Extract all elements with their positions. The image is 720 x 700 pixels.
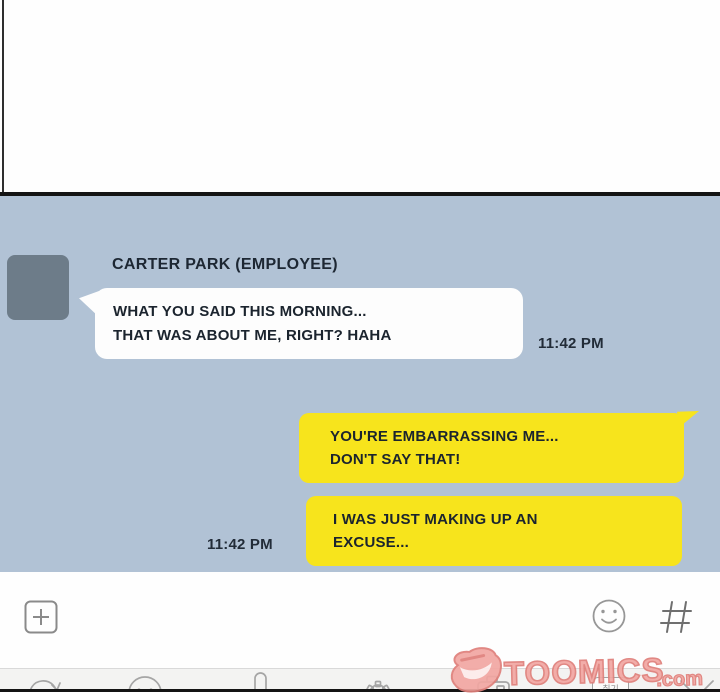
camera-button[interactable] xyxy=(476,675,512,689)
panel-bottom-border xyxy=(0,689,720,692)
keyboard-toolbar: 취기 xyxy=(0,668,720,689)
chat-panel: CARTER PARK (EMPLOYEE) WHAT YOU SAID THI… xyxy=(0,196,720,572)
smiley-icon xyxy=(591,622,627,637)
panel-left-border xyxy=(2,0,4,192)
sender-name: CARTER PARK (EMPLOYEE) xyxy=(112,256,338,274)
outgoing-message-bubble: YOU'RE EMBARRASSING ME... DON'T SAY THAT… xyxy=(299,413,684,483)
hashtag-icon xyxy=(658,624,696,639)
emoticon-button[interactable] xyxy=(127,675,163,689)
message-line: DON'T SAY THAT! xyxy=(330,448,684,471)
settings-button[interactable] xyxy=(360,673,396,689)
message-line: EXCUSE... xyxy=(333,531,682,554)
bubble-tail-left xyxy=(79,291,99,317)
timestamp: 11:42 PM xyxy=(207,536,273,553)
plus-icon xyxy=(24,622,58,637)
korean-label-button[interactable]: 취기 xyxy=(592,677,629,689)
close-button[interactable] xyxy=(679,679,715,689)
webtoon-chat-screenshot: CARTER PARK (EMPLOYEE) WHAT YOU SAID THI… xyxy=(0,0,720,700)
top-blank-panel xyxy=(0,0,720,192)
microphone-button[interactable] xyxy=(254,672,268,689)
message-composer xyxy=(0,572,720,668)
emoji-button[interactable] xyxy=(591,598,627,634)
incoming-message-bubble: WHAT YOU SAID THIS MORNING... THAT WAS A… xyxy=(95,288,523,359)
timestamp: 11:42 PM xyxy=(538,335,604,352)
message-line: THAT WAS ABOUT ME, RIGHT? HAHA xyxy=(113,324,523,348)
add-attachment-button[interactable] xyxy=(24,600,58,634)
message-line: I WAS JUST MAKING UP AN xyxy=(333,508,682,531)
outgoing-message-bubble: I WAS JUST MAKING UP AN EXCUSE... xyxy=(306,496,682,566)
hashtag-button[interactable] xyxy=(658,598,696,636)
message-line: YOU'RE EMBARRASSING ME... xyxy=(330,425,684,448)
bubble-tail-right xyxy=(677,411,699,427)
undo-arrow-button[interactable] xyxy=(26,673,64,689)
avatar xyxy=(7,255,69,320)
message-line: WHAT YOU SAID THIS MORNING... xyxy=(113,300,523,324)
